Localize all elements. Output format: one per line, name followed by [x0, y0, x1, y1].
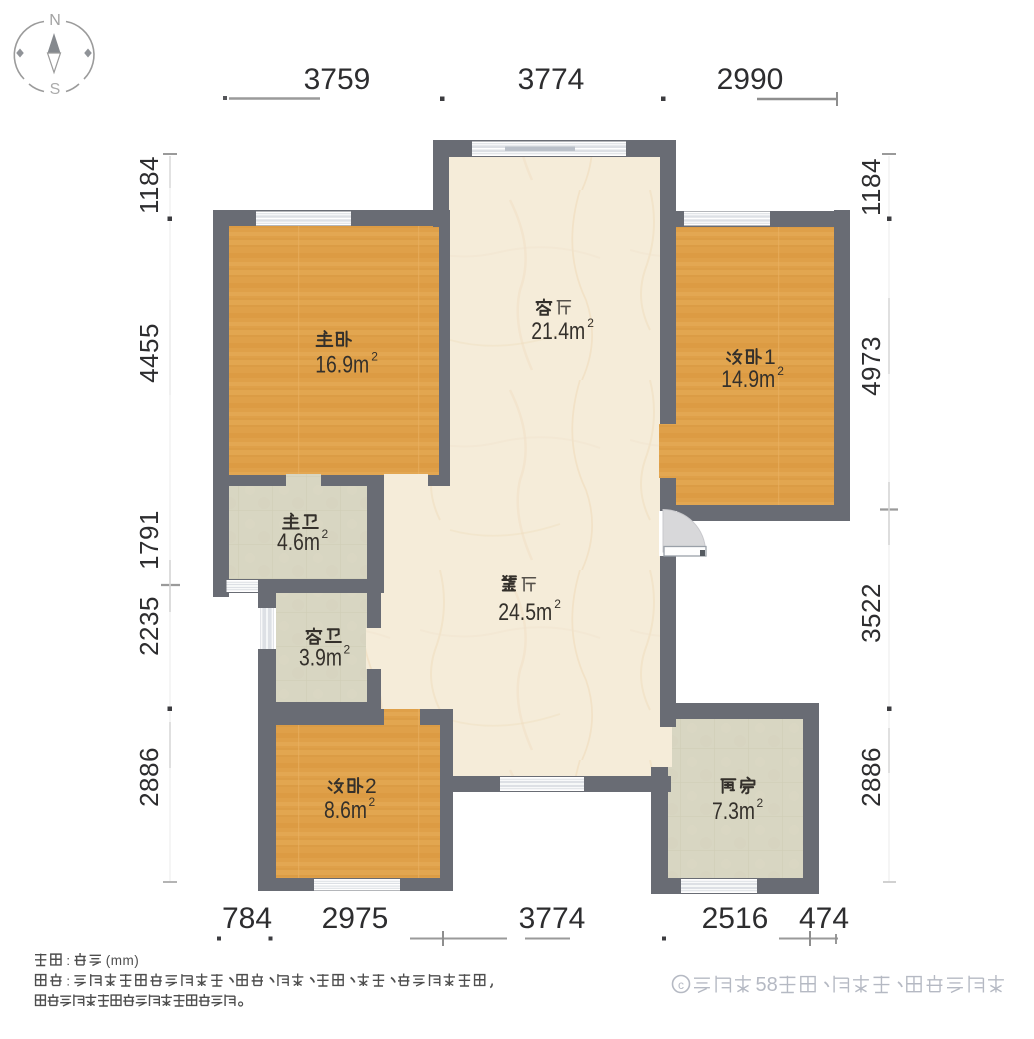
svg-text:3.9m: 3.9m [299, 645, 342, 672]
svg-text:474: 474 [799, 902, 849, 935]
svg-text:4455: 4455 [134, 323, 164, 383]
svg-text:21.4m: 21.4m [531, 318, 585, 345]
svg-text:1184: 1184 [856, 158, 886, 216]
svg-text:4973: 4973 [856, 336, 886, 396]
svg-text:2: 2 [369, 795, 376, 809]
svg-text:24.5m: 24.5m [498, 599, 552, 626]
svg-text:58: 58 [756, 974, 778, 996]
svg-text:1791: 1791 [134, 510, 164, 570]
svg-text:S: S [50, 81, 61, 98]
svg-text:2: 2 [322, 527, 329, 541]
svg-text:2516: 2516 [702, 902, 769, 935]
svg-text:1184: 1184 [134, 156, 164, 214]
svg-text:7.3m: 7.3m [712, 798, 755, 825]
svg-text:2: 2 [554, 597, 561, 611]
svg-text:2: 2 [371, 350, 378, 364]
svg-text:N: N [49, 12, 61, 29]
svg-text:2: 2 [757, 796, 764, 810]
svg-text:2990: 2990 [717, 63, 784, 96]
svg-text:8.6m: 8.6m [324, 797, 367, 824]
svg-text:2235: 2235 [134, 596, 164, 656]
svg-text:16.9m: 16.9m [315, 352, 369, 379]
svg-text:2: 2 [587, 316, 594, 330]
svg-text:3774: 3774 [519, 902, 586, 935]
svg-text:14.9m: 14.9m [721, 366, 775, 393]
svg-text:2: 2 [344, 643, 351, 657]
svg-text::: : [66, 974, 70, 989]
svg-text:2: 2 [777, 364, 784, 378]
svg-text::: : [66, 953, 70, 968]
svg-text:784: 784 [222, 902, 272, 935]
svg-text:(mm): (mm) [106, 953, 139, 968]
svg-text:3759: 3759 [304, 63, 371, 96]
svg-text:4.6m: 4.6m [277, 529, 320, 556]
svg-text:3774: 3774 [518, 63, 585, 96]
svg-text:2886: 2886 [856, 747, 886, 807]
svg-text:c: c [678, 978, 684, 992]
svg-text:3522: 3522 [856, 583, 886, 643]
svg-text:2975: 2975 [322, 902, 389, 935]
svg-text:2886: 2886 [134, 747, 164, 807]
